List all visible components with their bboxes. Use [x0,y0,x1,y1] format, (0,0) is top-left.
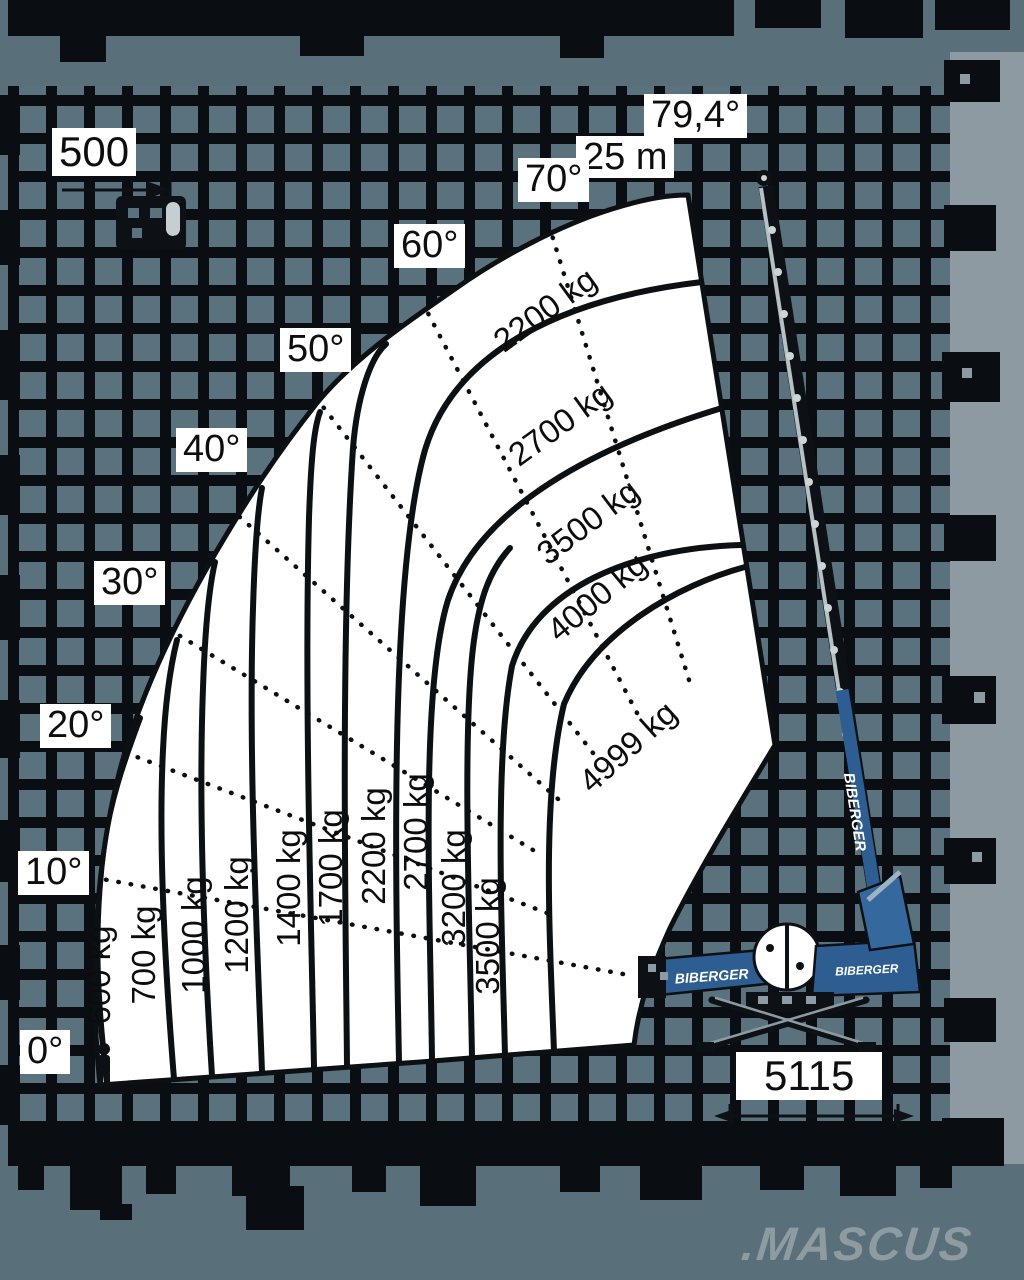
capacity-label-3200: 3200 kg [435,829,472,946]
capacity-label-2200: 2200 kg [355,787,392,904]
angle-label-30: 30° [94,561,165,605]
angle-label-79-4: 79,4° [644,94,747,138]
scan-artifact-right-strip [942,52,1024,1166]
capacity-label-600: 600 kg [80,925,117,1024]
angle-label-70: 70° [518,158,589,202]
angle-label-60: 60° [394,224,465,268]
dimension-5115 [714,1104,914,1128]
angle-label-20: 20° [40,704,111,748]
capacity-label-1200: 1200 kg [218,856,255,973]
scan-artifact-bottom-band [8,1128,952,1230]
arrow-right-icon [894,1109,914,1123]
boom-tip-sheave-hub [761,175,767,181]
load-chart-page: { "meta": { "brand": "BIBERGER", "waterm… [0,0,1024,1280]
arrow-left-icon [714,1109,734,1123]
angle-label-50: 50° [280,328,351,372]
winch-icon [116,196,186,250]
base-width-label: 5115 [736,1052,882,1100]
capacity-label-1400: 1400 kg [270,829,307,946]
scan-artifact-top-band [8,0,1010,62]
jib-capacity-label: 500 [52,128,136,176]
angle-label-40: 40° [176,428,247,472]
capacity-label-2700: 2700 kg [397,773,434,890]
scan-artifact-left-edge [0,95,20,1125]
capacity-label-1700: 1700 kg [312,809,349,926]
capacity-label-3500: 3500 kg [469,877,506,994]
watermark-mascus: .MASCUS [739,1216,976,1271]
outrigger-pad-right [858,1042,876,1052]
capacity-label-700: 700 kg [125,905,162,1004]
jib-capacity-annotation [62,176,186,250]
max-reach-label: 25 m [576,136,674,181]
capacity-label-1000: 1000 kg [175,876,212,993]
angle-label-0: 0° [20,1030,70,1074]
angle-label-10: 10° [18,851,89,895]
outrigger-pad-left [696,1042,714,1052]
